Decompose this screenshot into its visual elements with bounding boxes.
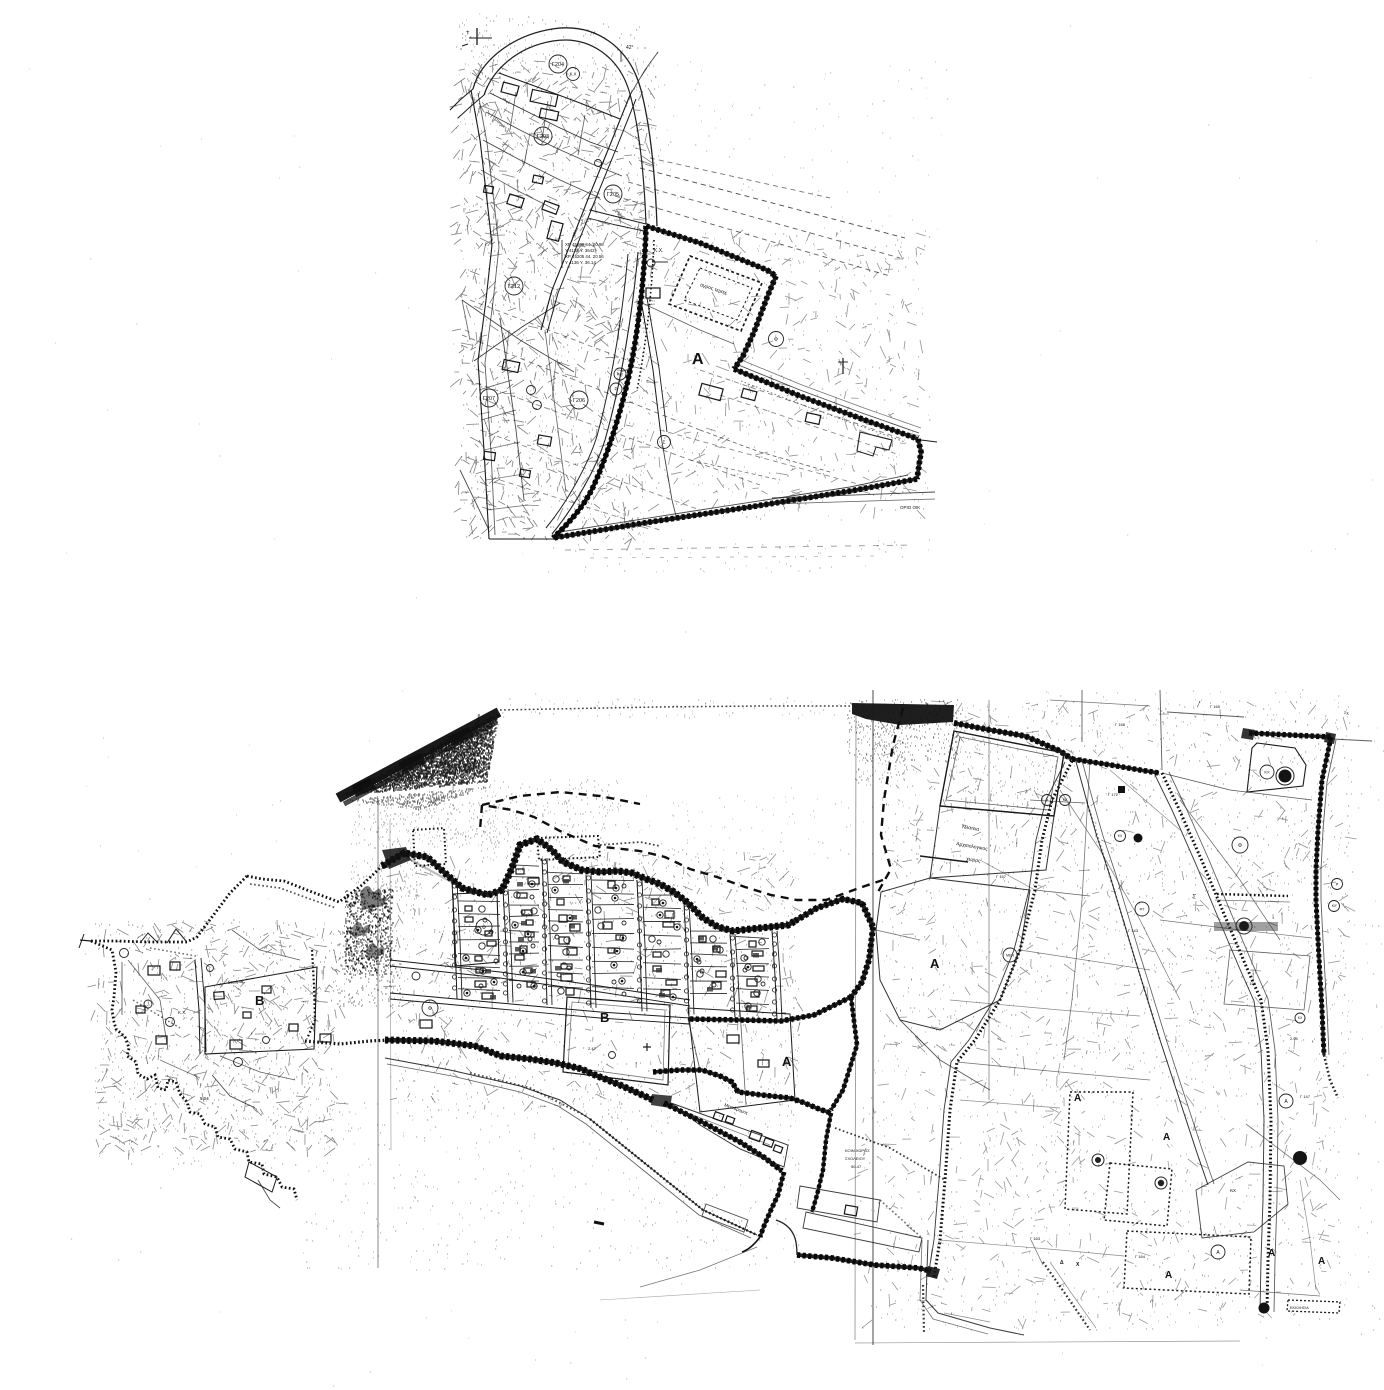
- svg-text:Σ: Σ: [663, 440, 666, 445]
- svg-text:A: A: [930, 956, 940, 971]
- svg-text:ΣΧΟΛΕΙΟΥ: ΣΧΟΛΕΙΟΥ: [845, 1156, 866, 1161]
- svg-text:A: A: [1163, 1132, 1170, 1143]
- svg-text:Γ 147: Γ 147: [1300, 1094, 1311, 1099]
- svg-text:2.05: 2.05: [1290, 1036, 1299, 1041]
- svg-text:Φ: Φ: [428, 1006, 432, 1012]
- svg-text:Γ206: Γ206: [573, 398, 585, 404]
- svg-text:Γ 157: Γ 157: [996, 874, 1007, 879]
- svg-text:Φ: Φ: [482, 925, 486, 931]
- svg-text:50-47: 50-47: [851, 1164, 862, 1169]
- svg-text:ΟΡΙΟ ΟΙΚ: ΟΡΙΟ ΟΙΚ: [900, 505, 920, 510]
- svg-text:Γ 156: Γ 156: [1246, 981, 1257, 986]
- svg-text:ΦΤ: ΦΤ: [1139, 907, 1145, 911]
- svg-text:KX: KX: [1264, 769, 1270, 774]
- svg-text:ΧΡ 45205 44. 20.56: ΧΡ 45205 44. 20.56: [565, 254, 604, 259]
- svg-text:KX: KX: [1230, 1188, 1236, 1193]
- svg-text:KX: KX: [1298, 1016, 1303, 1020]
- svg-text:ΕΚΚΛΗΣΙΑ: ΕΚΚΛΗΣΙΑ: [1290, 1306, 1309, 1310]
- svg-text:Γ 172: Γ 172: [1108, 792, 1119, 797]
- svg-text:ΜΕΝ: ΜΕΝ: [1006, 953, 1014, 957]
- svg-text:KX: KX: [1118, 834, 1123, 838]
- svg-text:Φ: Φ: [774, 337, 778, 343]
- svg-text:5.04: 5.04: [200, 1096, 209, 1101]
- svg-text:Γ 168: Γ 168: [1115, 722, 1126, 727]
- svg-text:B: B: [600, 1010, 609, 1025]
- svg-text:ΚΟΙΝ.ΧΩΡΟΣ: ΚΟΙΝ.ΧΩΡΟΣ: [845, 1148, 870, 1153]
- svg-text:K.X: K.X: [570, 72, 577, 77]
- svg-text:A: A: [1074, 1093, 1081, 1104]
- svg-text:Γ 165: Γ 165: [1210, 704, 1221, 709]
- svg-text:Γ 163: Γ 163: [1030, 1236, 1041, 1241]
- svg-text:Γ 164: Γ 164: [1135, 1254, 1146, 1259]
- svg-text:Φ: Φ: [1238, 843, 1242, 849]
- svg-text:Γ 143: Γ 143: [1128, 928, 1139, 933]
- svg-text:A: A: [1318, 1256, 1325, 1267]
- svg-text:Δ: Δ: [1060, 1260, 1064, 1266]
- svg-text:42°: 42°: [626, 45, 634, 51]
- svg-text:K.X.: K.X.: [654, 248, 663, 254]
- svg-text:Υ 4136 Υ. 36.14: Υ 4136 Υ. 36.14: [565, 260, 596, 265]
